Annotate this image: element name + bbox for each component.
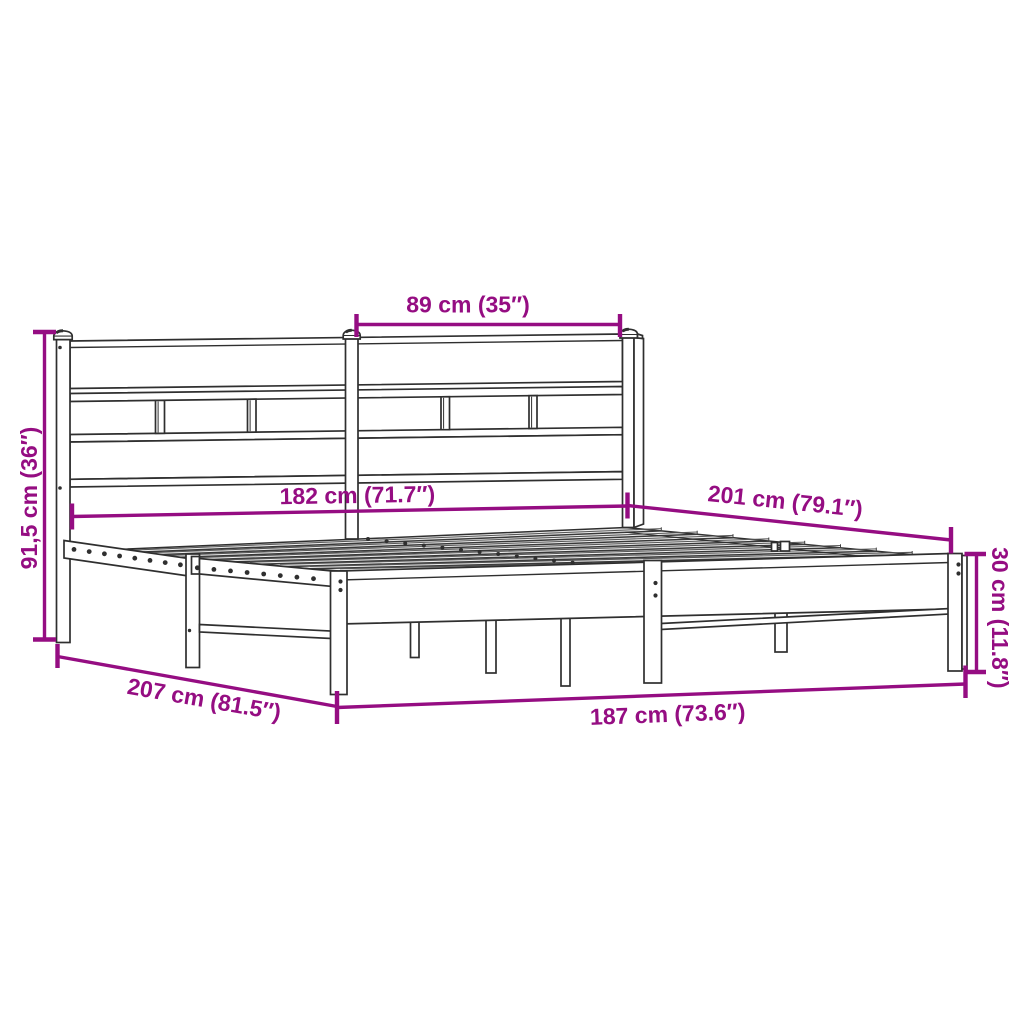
svg-text:89 cm (35″): 89 cm (35″) — [406, 292, 530, 318]
svg-text:182 cm (71.7″): 182 cm (71.7″) — [279, 481, 435, 510]
svg-text:91,5 cm (36″): 91,5 cm (36″) — [16, 427, 42, 570]
svg-text:30 cm (11.8″): 30 cm (11.8″) — [987, 547, 1013, 688]
